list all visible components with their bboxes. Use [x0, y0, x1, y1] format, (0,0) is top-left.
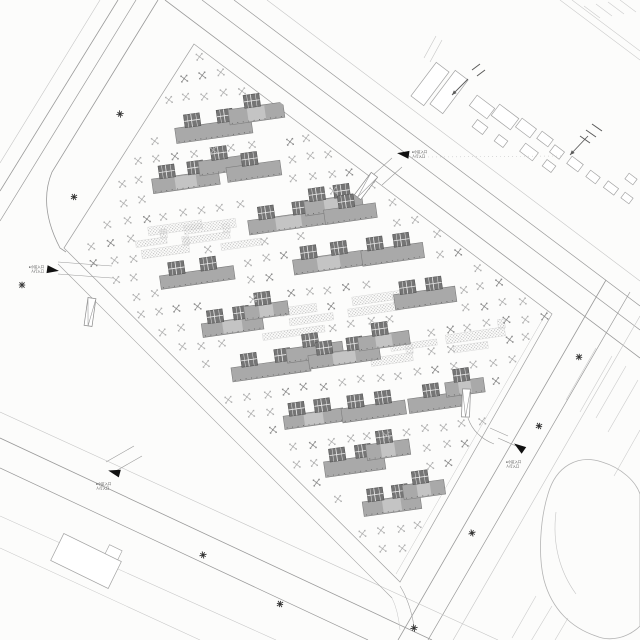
- entrance-label: 人行入口: [412, 153, 425, 158]
- building-slab-light: [380, 442, 396, 457]
- entrance-label: ●小区入口: [29, 264, 44, 269]
- site-plan: ●小区入口人行入口●小区入口人行入口●小区入口人行入口●小区入口人行入口: [0, 0, 640, 640]
- entrance-label: 人行入口: [506, 463, 519, 468]
- gate-ramp: [462, 389, 471, 417]
- building-slab-light: [247, 106, 266, 122]
- entrance-label: 人行入口: [31, 268, 44, 273]
- street-lamp-icon: [575, 353, 582, 360]
- site-plan-canvas: ●小区入口人行入口●小区入口人行入口●小区入口人行入口●小区入口人行入口: [0, 0, 640, 640]
- entrance-label: ●小区入口: [412, 149, 427, 154]
- street-lamp-icon: [19, 282, 26, 289]
- entrance-label: 人行入口: [96, 485, 109, 490]
- building-slab-light: [258, 304, 274, 318]
- entrance-label: ●小区入口: [506, 459, 521, 464]
- entrance-label: ●小区入口: [96, 481, 111, 486]
- building-slab-light: [416, 482, 431, 496]
